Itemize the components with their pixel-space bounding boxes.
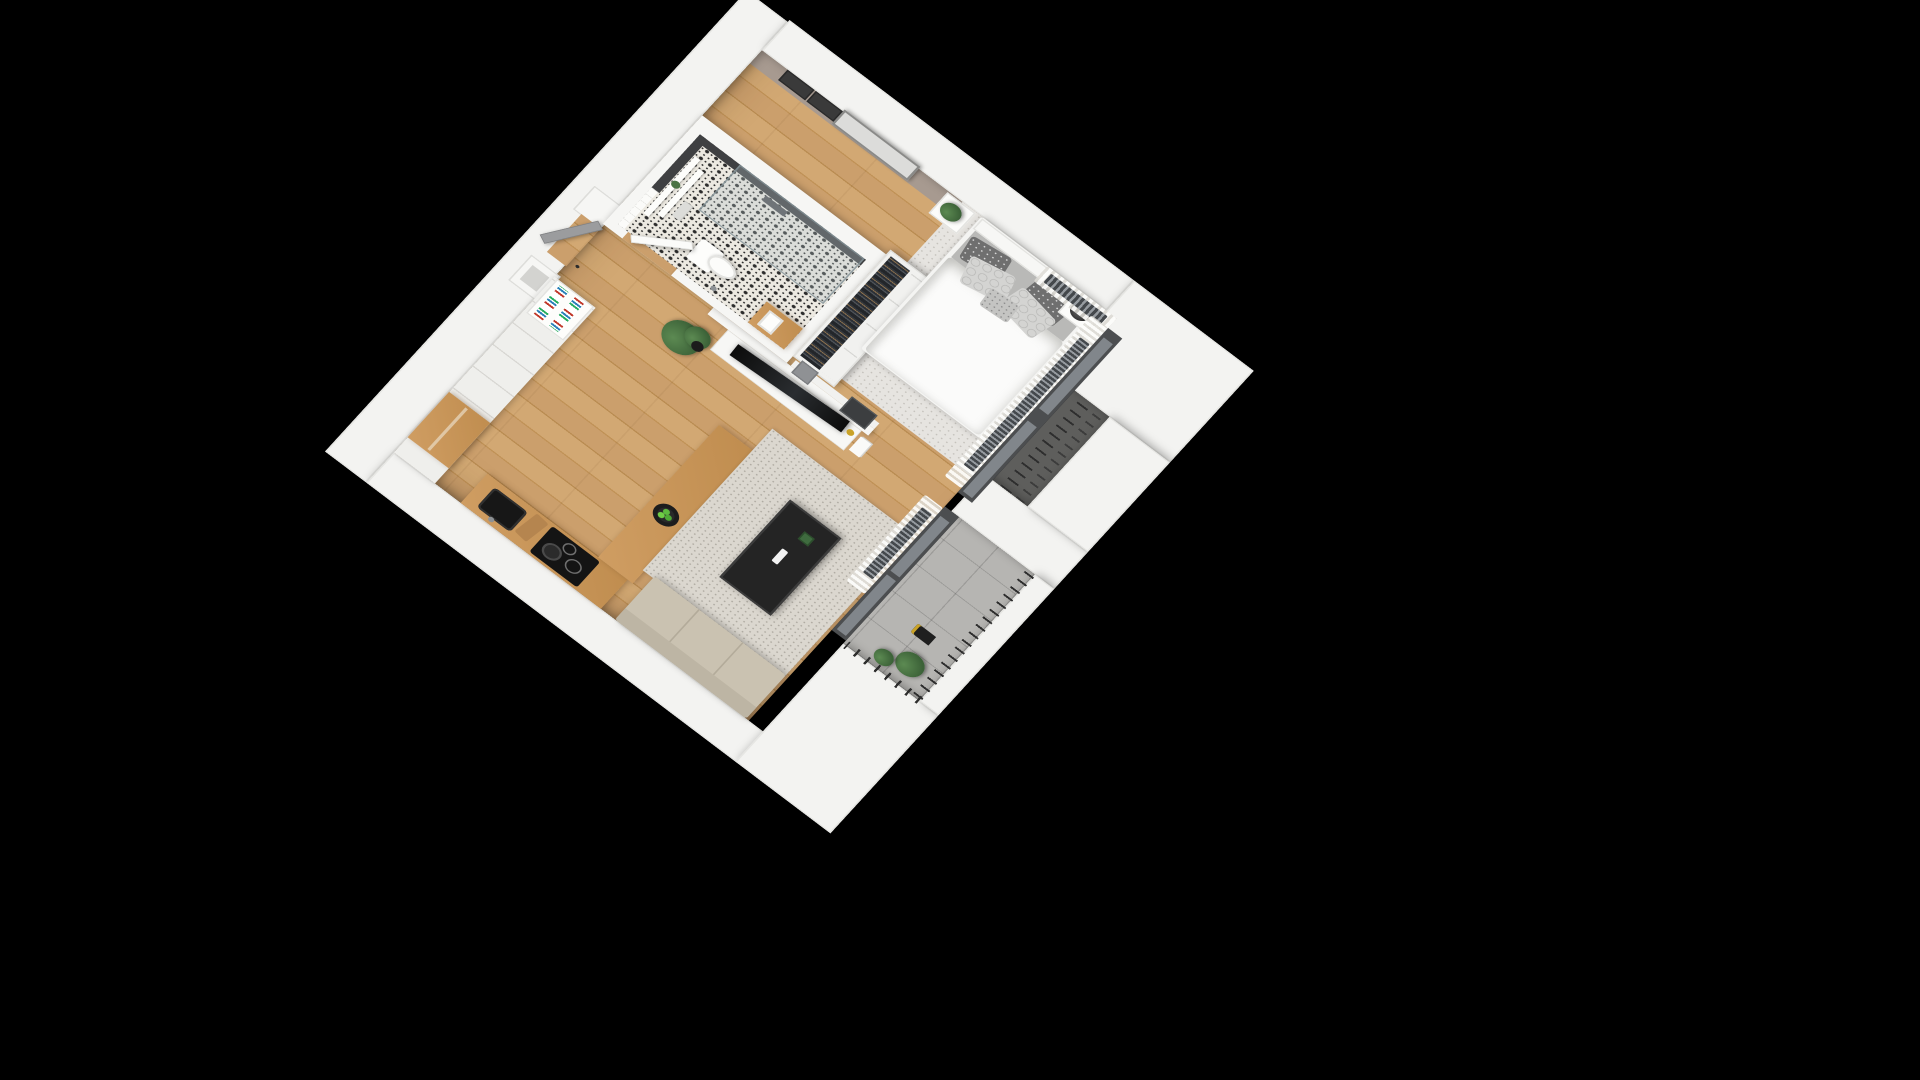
- apartment-floor-plan: [368, 27, 1233, 811]
- render-canvas: [0, 0, 1920, 1080]
